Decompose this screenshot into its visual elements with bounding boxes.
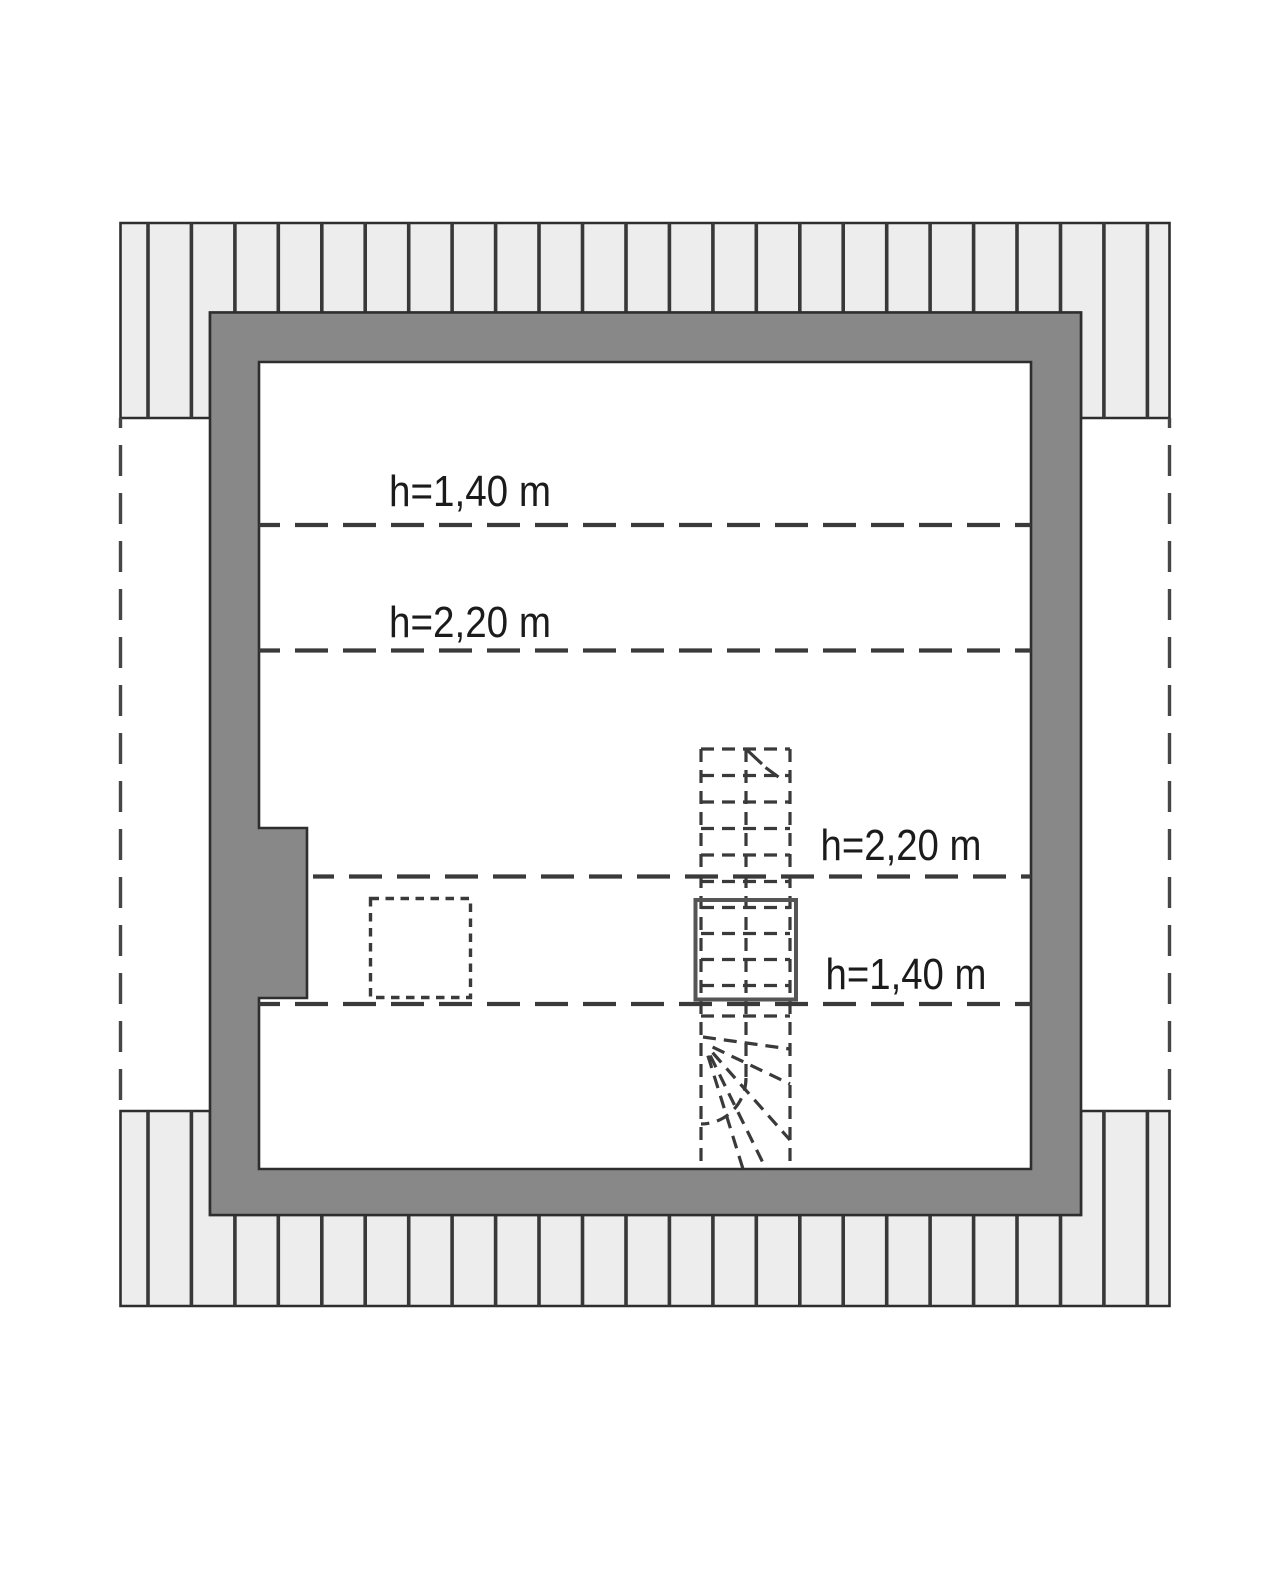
svg-text:h=2,20 m: h=2,20 m — [821, 821, 982, 870]
svg-text:h=1,40 m: h=1,40 m — [826, 950, 987, 999]
svg-text:h=2,20 m: h=2,20 m — [389, 598, 551, 647]
svg-text:h=1,40 m: h=1,40 m — [389, 467, 551, 516]
